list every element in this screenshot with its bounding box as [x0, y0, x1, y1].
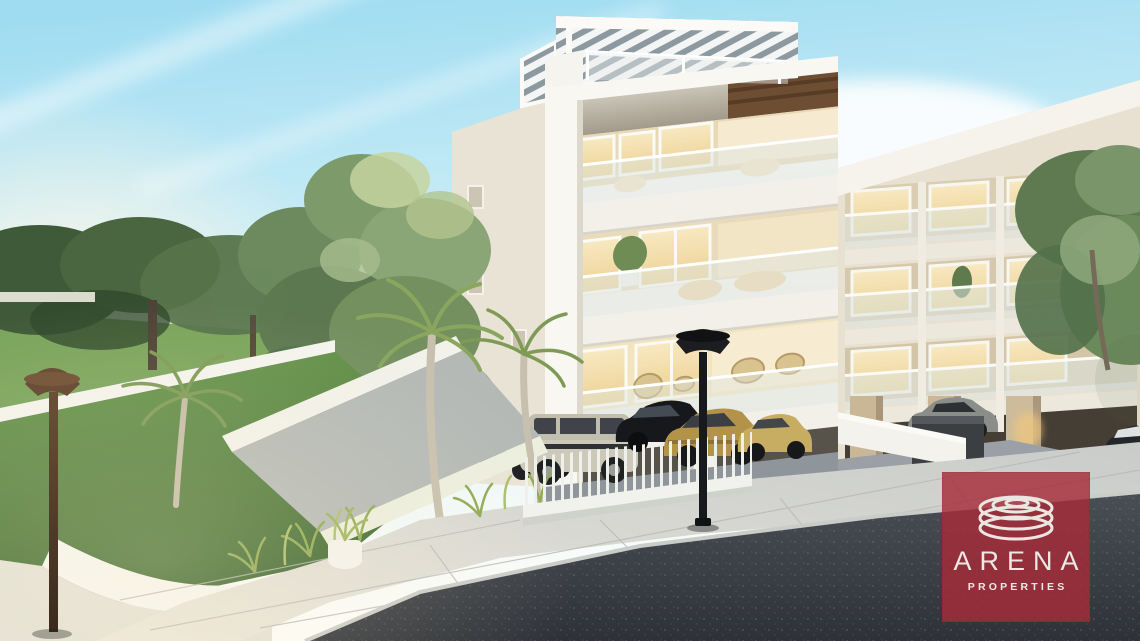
watermark-tagline-text: PROPERTIES [965, 582, 1068, 593]
architectural-render-scene: ARENA PROPERTIES [0, 0, 1140, 641]
watermark-brand-text: ARENA [945, 548, 1086, 575]
arena-properties-watermark: ARENA PROPERTIES [942, 472, 1090, 622]
coil-rings-icon [968, 486, 1064, 544]
